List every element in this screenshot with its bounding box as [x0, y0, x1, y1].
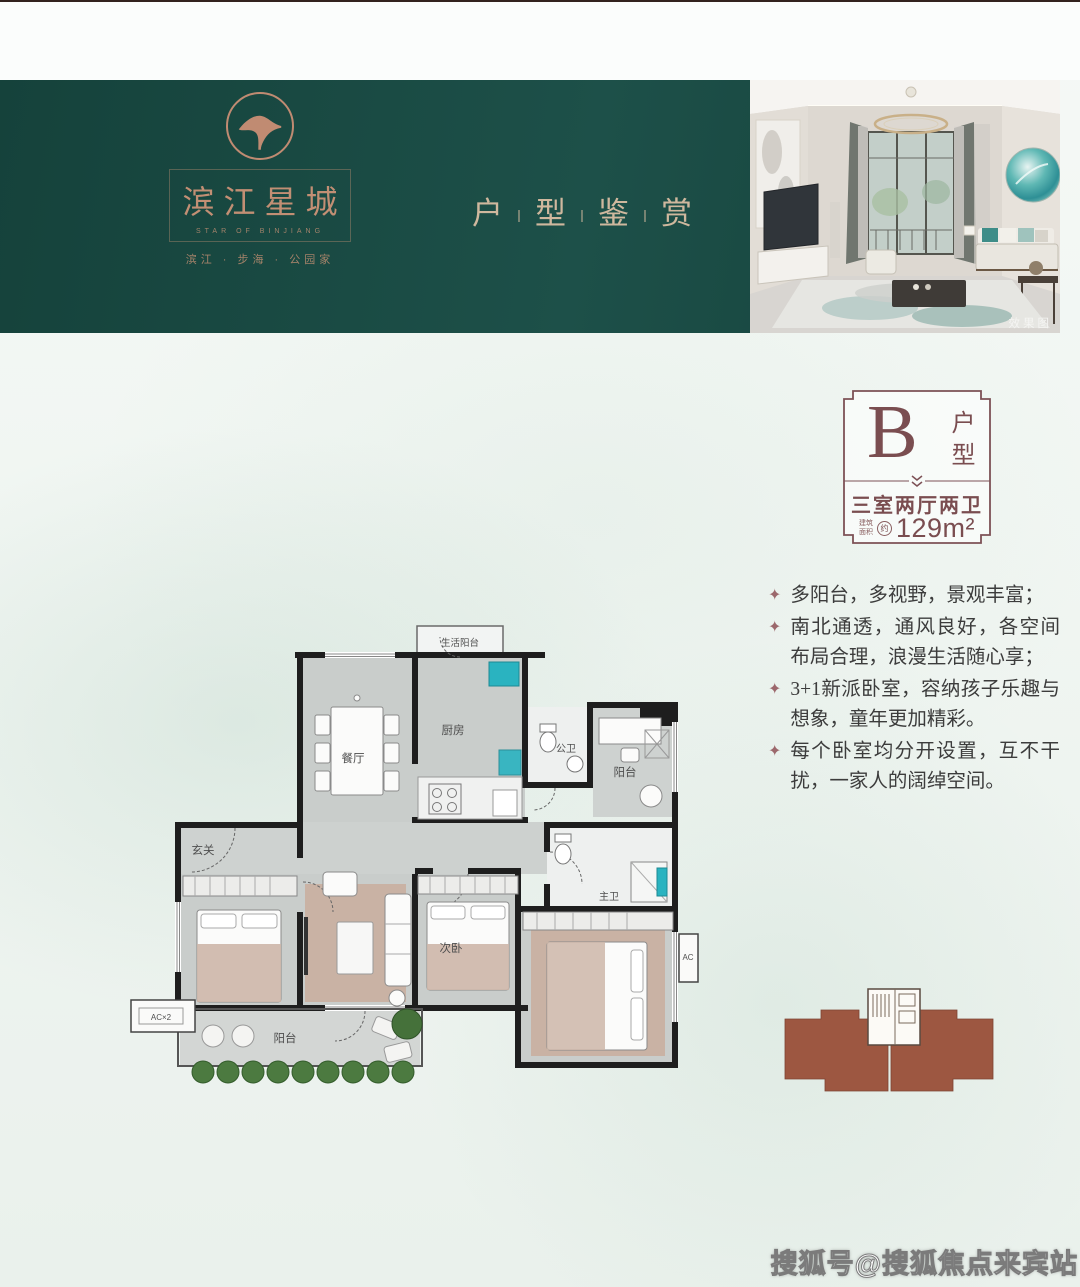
label-balcony-top: 阳台	[614, 765, 637, 779]
unit-letter: B	[867, 394, 918, 470]
area-prefix: 建筑 面积	[859, 520, 873, 538]
floor-plan: AC×2 AC 生活阳台 餐厅 厨房 公卫 阳台 玄关 次卧 主卫 阳台	[85, 612, 703, 1084]
interior-render-photo: 效果图	[750, 80, 1060, 333]
svg-text:AC: AC	[682, 953, 693, 962]
approx-circle: 约	[877, 521, 892, 536]
feature-item: ✦ 多阳台，多视野，景观丰富；	[768, 581, 1060, 611]
feature-item: ✦ 3+1新派卧室，容纳孩子乐趣与想象，童年更加精彩。	[768, 675, 1060, 735]
title-char: 户	[472, 188, 503, 233]
star-bullet-icon: ✦	[768, 613, 781, 673]
brand-logo: 滨江星城 STAR OF BINJIANG 滨江 · 步海 · 公园家	[148, 92, 372, 267]
title-separator	[644, 210, 646, 222]
mountain-logo-icon	[226, 92, 294, 160]
brand-subtitle: STAR OF BINJIANG	[182, 228, 337, 235]
feature-item: ✦ 每个卧室均分开设置，互不干扰，一家人的阔绰空间。	[768, 737, 1060, 797]
area-value: 129m²	[896, 513, 975, 544]
tv-screen	[764, 184, 818, 250]
feature-list: ✦ 多阳台，多视野，景观丰富； ✦ 南北通透，通风良好，各空间布局合理，浪漫生活…	[768, 581, 1060, 799]
unit-type-label: 户型	[943, 410, 978, 474]
brand-name-frame: 滨江星城 STAR OF BINJIANG	[169, 169, 350, 242]
star-bullet-icon: ✦	[768, 675, 781, 735]
brand-tagline: 滨江 · 步海 · 公园家	[148, 251, 372, 267]
bedroom-second-furniture	[418, 876, 518, 990]
watermark: 搜狐号@搜狐焦点来宾站	[771, 1242, 1078, 1281]
title-char: 鉴	[598, 188, 629, 233]
label-dining: 餐厅	[342, 751, 365, 765]
coffee-table	[892, 280, 966, 307]
label-second-bedroom: 次卧	[440, 941, 463, 955]
title-separator	[581, 210, 583, 222]
building-footprint	[775, 983, 1003, 1098]
star-bullet-icon: ✦	[768, 581, 781, 611]
unit-badge: B 户型 三室两厅两卫 建筑 面积 约 129m²	[833, 386, 1001, 548]
label-entry: 玄关	[192, 843, 215, 857]
label-service-balcony: 生活阳台	[441, 637, 479, 649]
round-wall-art	[1006, 148, 1060, 202]
plant-row	[192, 1061, 414, 1083]
ac-platform-left: AC×2	[131, 1000, 195, 1032]
title-char: 赏	[661, 188, 692, 233]
label-kitchen: 厨房	[442, 724, 465, 737]
feature-item: ✦ 南北通透，通风良好，各空间布局合理，浪漫生活随心享；	[768, 613, 1060, 673]
svg-text:AC×2: AC×2	[151, 1013, 172, 1022]
ac-platform-right: AC	[679, 934, 698, 982]
brochure-page: 滨江星城 STAR OF BINJIANG 滨江 · 步海 · 公园家 户 型 …	[0, 0, 1080, 1287]
footprint-core	[868, 989, 920, 1045]
label-guest-bath: 公卫	[556, 744, 576, 755]
star-bullet-icon: ✦	[768, 737, 781, 797]
unit-area: 建筑 面积 约 129m²	[833, 513, 1001, 544]
title-separator	[518, 210, 520, 222]
console-table	[1018, 276, 1058, 283]
label-balcony-bottom: 阳台	[274, 1031, 297, 1045]
label-master-bath: 主卫	[599, 891, 619, 903]
brand-name: 滨江星城	[182, 177, 346, 223]
bedroom-left-furniture	[183, 876, 297, 1002]
photo-caption: 效果图	[1009, 316, 1053, 330]
top-white-margin	[0, 2, 1080, 80]
title-char: 型	[535, 188, 566, 233]
series-title: 户 型 鉴 赏	[472, 188, 692, 233]
